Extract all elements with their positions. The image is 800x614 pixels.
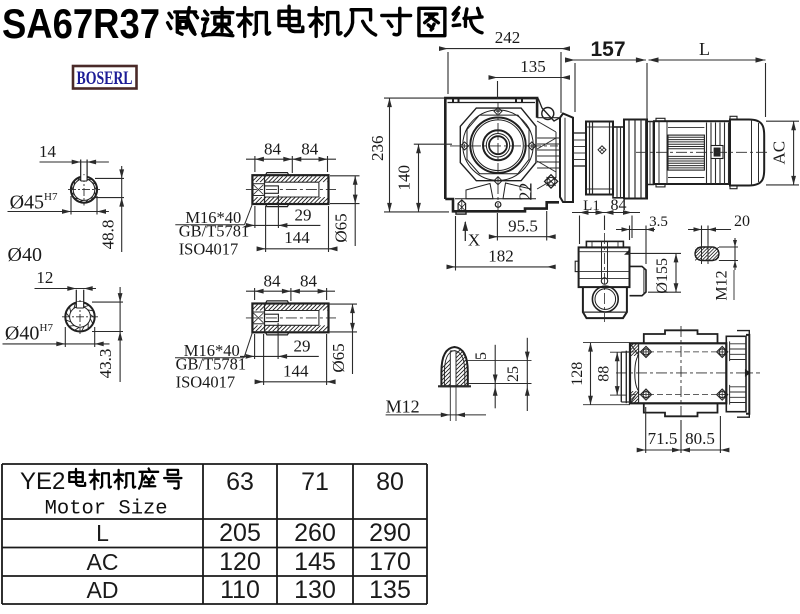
svg-text:84: 84: [300, 272, 318, 291]
svg-text:88: 88: [596, 366, 613, 382]
svg-text:12: 12: [36, 268, 53, 287]
svg-text:48.8: 48.8: [99, 220, 118, 250]
svg-text:84: 84: [301, 140, 319, 159]
svg-text:80.5: 80.5: [685, 429, 715, 448]
svg-text:71.5: 71.5: [648, 429, 678, 448]
svg-text:5: 5: [473, 352, 490, 360]
svg-text:29: 29: [294, 337, 311, 356]
svg-text:22: 22: [516, 183, 536, 201]
svg-text:BOSERL: BOSERL: [77, 68, 133, 89]
svg-text:84: 84: [611, 197, 627, 214]
svg-text:ISO4017: ISO4017: [176, 373, 236, 392]
svg-text:182: 182: [488, 247, 514, 266]
svg-text:145: 145: [294, 548, 336, 576]
svg-text:AC: AC: [87, 549, 119, 575]
svg-text:SA67R37: SA67R37: [2, 0, 160, 47]
svg-text:144: 144: [284, 228, 310, 247]
svg-text:205: 205: [219, 519, 261, 547]
svg-text:Ø65: Ø65: [332, 213, 351, 242]
svg-text:Ø40: Ø40: [5, 323, 39, 345]
svg-text:236: 236: [368, 135, 387, 161]
svg-text:14: 14: [39, 142, 57, 161]
svg-text:260: 260: [294, 519, 336, 547]
svg-text:290: 290: [369, 519, 411, 547]
svg-text:AC: AC: [770, 141, 789, 165]
svg-text:ISO4017: ISO4017: [179, 240, 239, 259]
svg-text:128: 128: [569, 362, 586, 386]
svg-text:L: L: [699, 39, 710, 59]
svg-text:95.5: 95.5: [508, 217, 538, 236]
svg-text:AD: AD: [87, 577, 119, 603]
svg-text:X: X: [468, 231, 480, 250]
svg-text:80: 80: [376, 468, 404, 496]
svg-text:135: 135: [520, 57, 546, 76]
svg-text:144: 144: [283, 362, 309, 381]
svg-text:140: 140: [395, 165, 414, 191]
svg-text:170: 170: [369, 548, 411, 576]
svg-text:GB/T5781: GB/T5781: [179, 222, 250, 241]
svg-text:L: L: [96, 520, 109, 546]
svg-text:3.5: 3.5: [649, 214, 668, 230]
svg-text:71: 71: [301, 468, 329, 496]
svg-text:GB/T5781: GB/T5781: [176, 355, 247, 374]
svg-text:63: 63: [226, 468, 254, 496]
svg-text:43.3: 43.3: [96, 349, 115, 379]
svg-text:Ø45: Ø45: [10, 191, 44, 213]
svg-text:110: 110: [220, 576, 260, 604]
svg-text:H7: H7: [40, 322, 54, 334]
svg-text:M12: M12: [714, 270, 731, 300]
svg-text:Ø155: Ø155: [654, 258, 671, 294]
svg-text:20: 20: [734, 213, 750, 230]
svg-text:L1: L1: [583, 198, 600, 214]
svg-text:135: 135: [369, 576, 411, 604]
svg-text:25: 25: [505, 366, 522, 382]
svg-text:YE2: YE2: [20, 468, 65, 495]
svg-text:Motor Size: Motor Size: [45, 498, 168, 521]
svg-text:Ø40: Ø40: [8, 244, 42, 266]
svg-text:130: 130: [294, 576, 336, 604]
svg-text:M12: M12: [386, 397, 420, 417]
svg-text:84: 84: [264, 140, 282, 159]
svg-text:157: 157: [590, 38, 625, 61]
svg-text:84: 84: [264, 272, 282, 291]
svg-text:120: 120: [219, 548, 261, 576]
svg-text:Ø65: Ø65: [329, 343, 348, 372]
svg-text:H7: H7: [44, 191, 58, 203]
svg-text:29: 29: [295, 206, 312, 225]
svg-text:242: 242: [495, 28, 521, 47]
